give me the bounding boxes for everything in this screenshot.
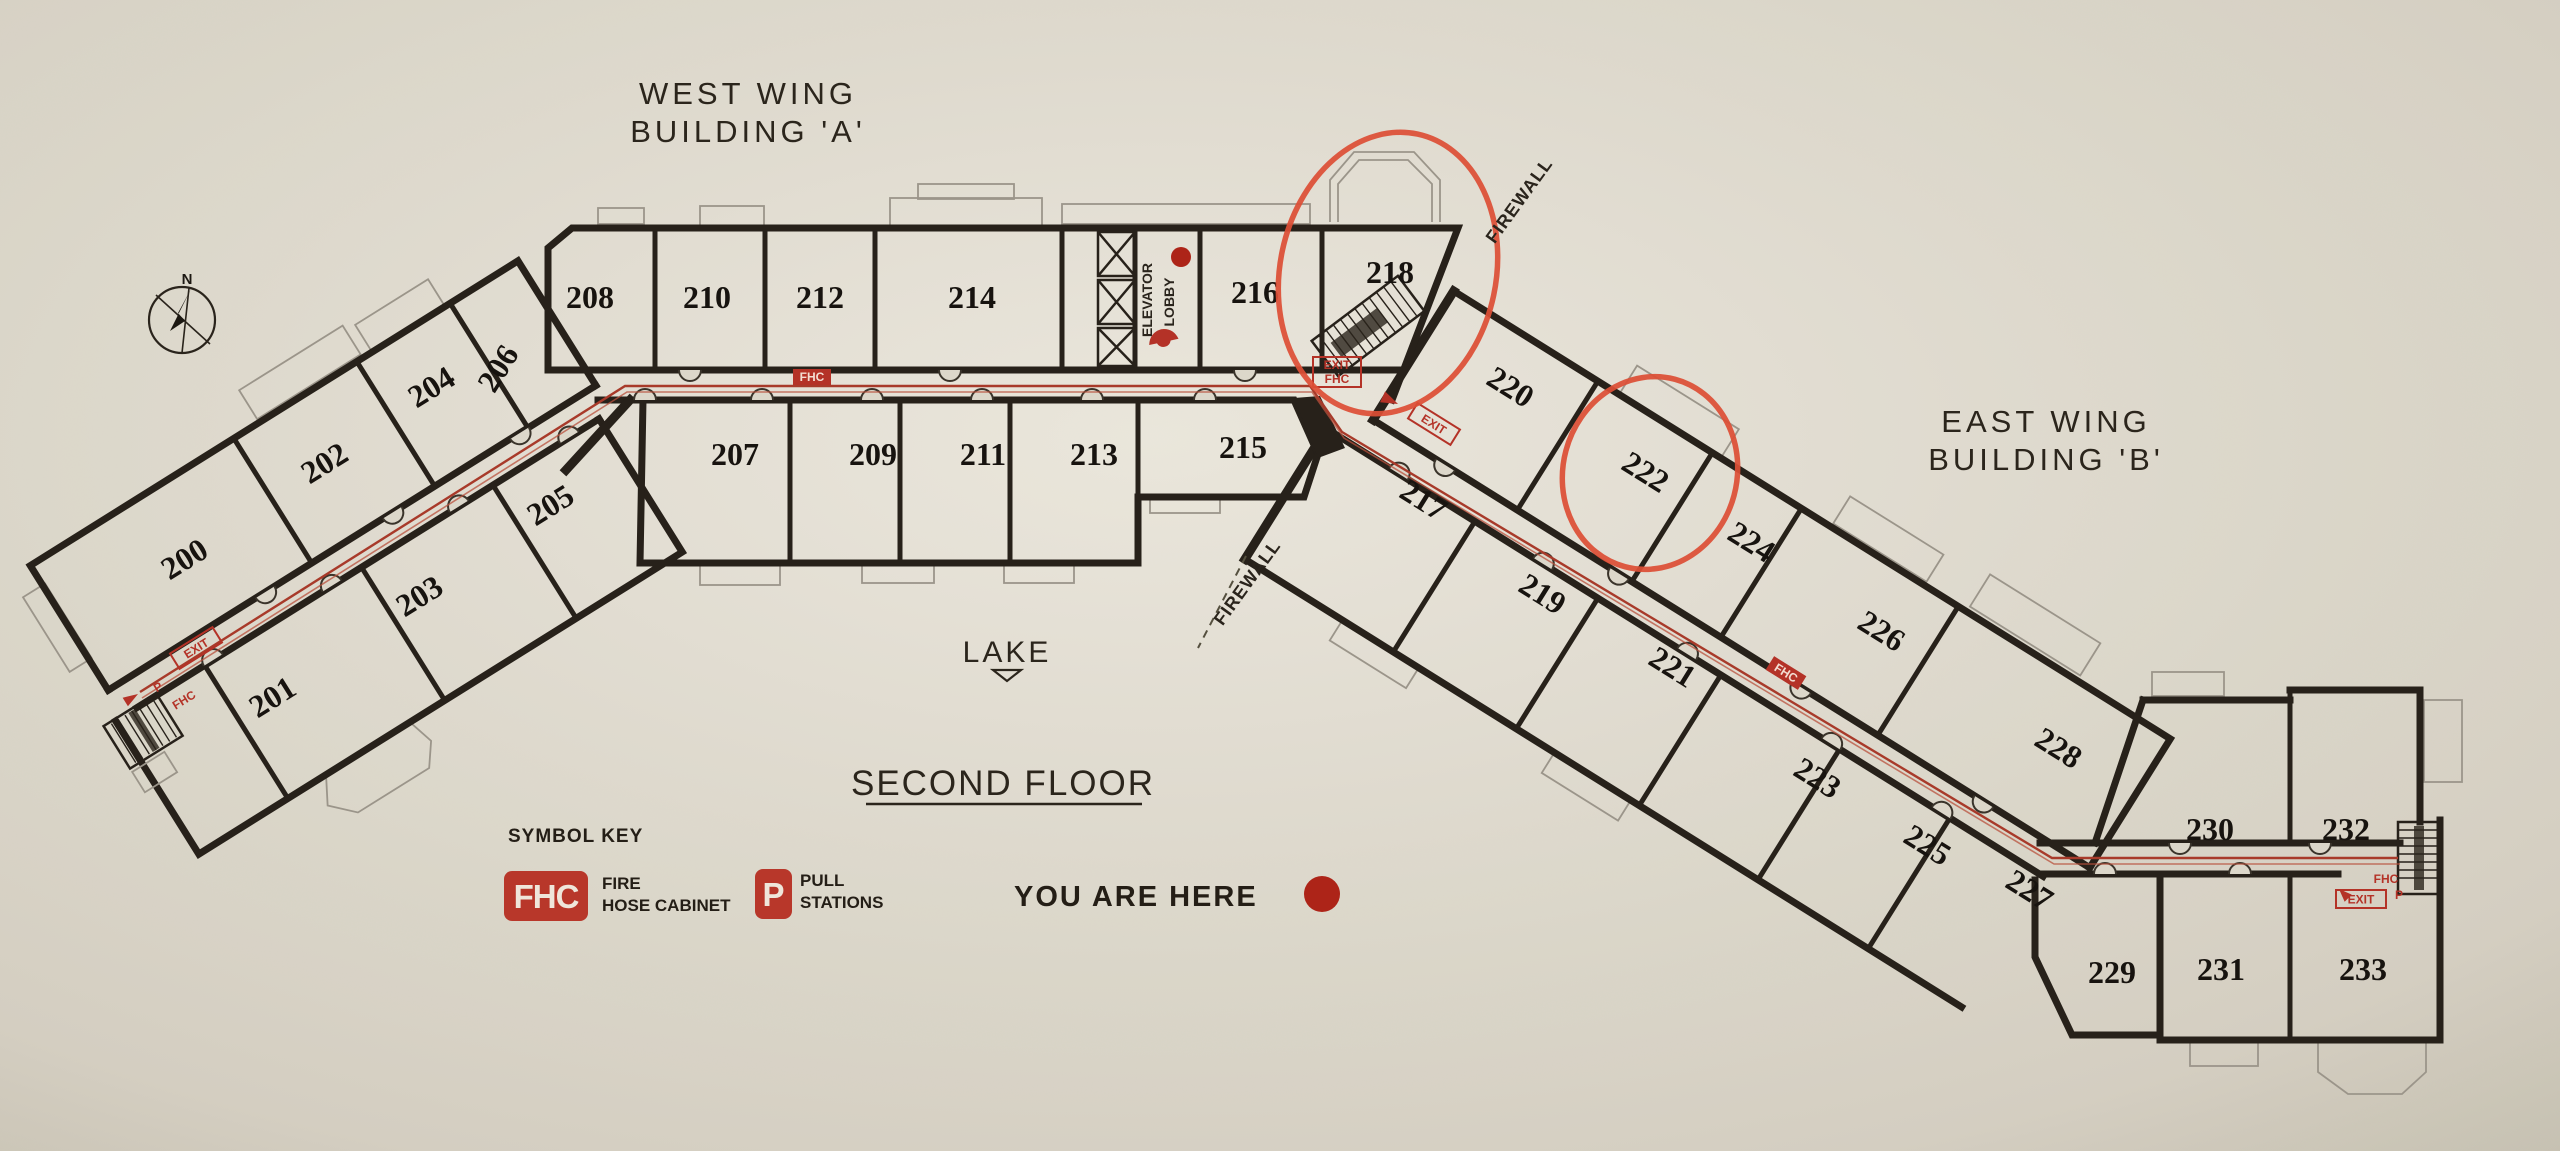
fhc-symbol-label: FHC <box>514 878 579 915</box>
room-label-214: 214 <box>948 279 996 315</box>
lake-label: LAKE <box>963 636 1052 669</box>
svg-text:FHC: FHC <box>2374 872 2399 886</box>
you-are-here-location-dot <box>1171 247 1191 267</box>
room-label-216: 216 <box>1231 274 1279 310</box>
east-wing-title-line2: BUILDING 'B' <box>1928 442 2164 477</box>
fhc-desc-line1: FIRE <box>602 874 641 893</box>
floor-plan-photo: 2002012022032042052062072082092102112122… <box>0 0 2560 1151</box>
svg-text:P: P <box>2395 888 2403 902</box>
paper-texture <box>0 0 2560 1151</box>
room-label-207: 207 <box>711 436 759 472</box>
room-label-231: 231 <box>2197 951 2245 987</box>
svg-text:FHC: FHC <box>800 370 825 384</box>
room-label-218: 218 <box>1366 254 1414 290</box>
room-label-211: 211 <box>960 436 1006 472</box>
fhc-desc-line2: HOSE CABINET <box>602 896 731 915</box>
room-label-230: 230 <box>2186 811 2234 847</box>
svg-text:EXIT: EXIT <box>1324 358 1351 372</box>
marker-fhc: FHC <box>793 369 831 385</box>
west-wing-title-line2: BUILDING 'A' <box>630 114 866 149</box>
room-label-232: 232 <box>2322 811 2370 847</box>
marker-fhc: FHC <box>2374 872 2399 886</box>
elevator-lobby-label-line2: LOBBY <box>1161 277 1177 327</box>
floor-plan-map: 2002012022032042052062072082092102112122… <box>0 0 2560 1151</box>
west-wing-title-line1: WEST WING <box>639 76 857 111</box>
room-label-233: 233 <box>2339 951 2387 987</box>
room-label-213: 213 <box>1070 436 1118 472</box>
pull-station-symbol-label: P <box>762 876 783 913</box>
elevator-lobby-label-line1: ELEVATOR <box>1139 263 1155 337</box>
compass-north-label: N <box>182 271 193 288</box>
you-are-here-legend-dot <box>1304 876 1340 912</box>
symbol-key-heading: SYMBOL KEY <box>508 826 643 847</box>
room-label-208: 208 <box>566 279 614 315</box>
room-label-229: 229 <box>2088 954 2136 990</box>
room-label-212: 212 <box>796 279 844 315</box>
you-are-here-label: YOU ARE HERE <box>1014 881 1258 913</box>
pull-desc-line2: STATIONS <box>800 893 883 912</box>
room-label-215: 215 <box>1219 429 1267 465</box>
floor-title: SECOND FLOOR <box>851 764 1155 803</box>
room-label-209: 209 <box>849 436 897 472</box>
marker-p: P <box>2395 888 2403 902</box>
room-label-210: 210 <box>683 279 731 315</box>
svg-text:EXIT: EXIT <box>2348 893 2375 907</box>
pull-desc-line1: PULL <box>800 871 844 890</box>
svg-text:FHC: FHC <box>1325 372 1350 386</box>
east-wing-title-line1: EAST WING <box>1941 404 2150 439</box>
